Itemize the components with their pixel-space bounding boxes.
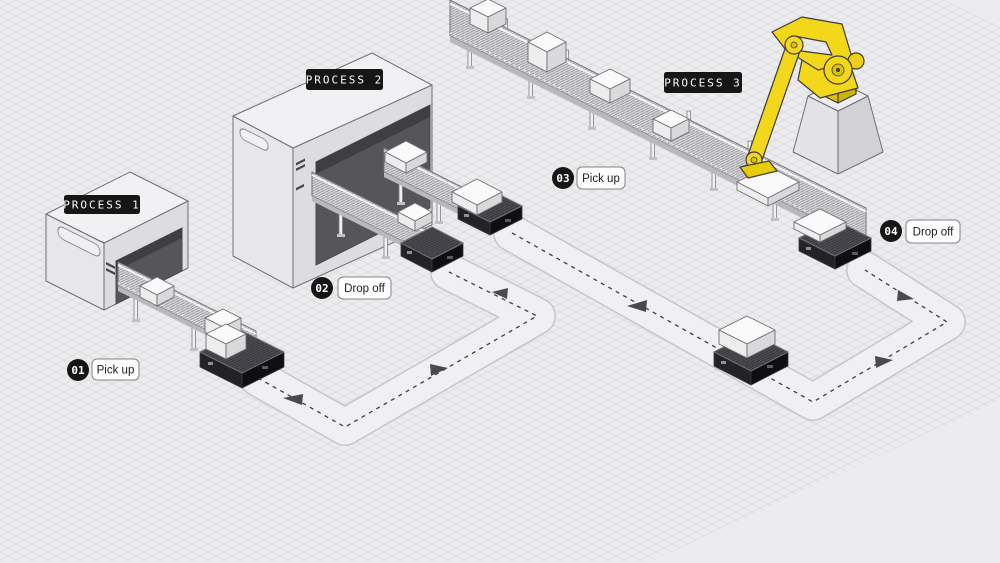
station-04-marker: 04 Drop off <box>880 220 960 243</box>
process-2-label: PROCESS 2 <box>306 69 384 90</box>
isometric-scene: PROCESS 1 PROCESS 2 PROCESS 3 01 Pick up… <box>0 0 1000 563</box>
process-1-label: PROCESS 1 <box>63 195 141 214</box>
svg-text:Drop off: Drop off <box>913 227 955 239</box>
svg-text:04: 04 <box>884 225 898 238</box>
svg-text:03: 03 <box>556 172 569 185</box>
svg-text:Drop off: Drop off <box>344 283 386 295</box>
svg-text:PROCESS 2: PROCESS 2 <box>306 74 384 87</box>
svg-text:02: 02 <box>315 282 328 295</box>
svg-text:01: 01 <box>71 364 85 377</box>
svg-text:Pick up: Pick up <box>582 173 620 185</box>
svg-text:PROCESS 1: PROCESS 1 <box>63 199 141 212</box>
factory-automation-diagram: PROCESS 1 PROCESS 2 PROCESS 3 01 Pick up… <box>0 0 1000 563</box>
svg-text:PROCESS 3: PROCESS 3 <box>664 77 742 90</box>
process-3-label: PROCESS 3 <box>664 72 742 93</box>
station-01-marker: 01 Pick up <box>67 359 139 381</box>
svg-text:Pick up: Pick up <box>97 365 135 377</box>
station-02-marker: 02 Drop off <box>311 277 391 299</box>
station-03-marker: 03 Pick up <box>552 167 625 189</box>
